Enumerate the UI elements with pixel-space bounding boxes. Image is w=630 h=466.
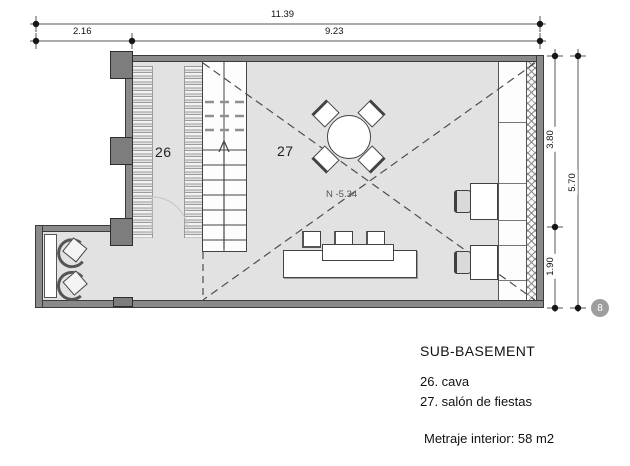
dim-right-lower: 1.90 — [545, 254, 556, 279]
pilaster — [110, 51, 133, 79]
armchair — [55, 267, 93, 303]
pilaster — [110, 218, 133, 246]
counter-division — [499, 280, 526, 281]
floor-plan-sheet: 26 27 N -5.34 11.39 2.16 9.23 3.80 1.90 … — [0, 0, 630, 466]
dim-top-right: 9.23 — [322, 26, 347, 37]
passage-floor — [124, 246, 133, 301]
annex-wall-left — [35, 225, 43, 308]
annex-wall-top — [35, 225, 117, 232]
counter-division — [499, 220, 526, 221]
floor-title: SUB-BASEMENT — [420, 343, 535, 359]
bar-counter-top — [322, 244, 394, 261]
room-27-label: 27 — [277, 143, 294, 159]
dim-right-total: 5.70 — [567, 170, 578, 195]
counter-division — [499, 183, 526, 184]
room-26-label: 26 — [155, 144, 172, 160]
interior-area-note: Metraje interior: 58 m2 — [424, 431, 554, 446]
pilaster — [110, 137, 133, 165]
desk-chair — [454, 251, 471, 274]
staircase — [202, 62, 247, 252]
level-annotation: N -5.34 — [326, 189, 357, 200]
bar-stool — [302, 231, 321, 248]
wine-rack-right — [184, 66, 203, 238]
pilaster — [113, 297, 133, 307]
dim-right-upper: 3.80 — [545, 127, 556, 152]
desk — [470, 245, 498, 280]
armchair — [54, 233, 93, 271]
built-in-counter — [498, 62, 526, 301]
sheet-marker-badge: 8 — [591, 299, 609, 317]
round-table — [327, 115, 371, 159]
wall-bottom — [35, 300, 544, 308]
counter-division — [499, 245, 526, 246]
dim-top-left: 2.16 — [70, 26, 95, 37]
legend-room-27: 27. salón de fiestas — [420, 394, 532, 409]
legend-room-26: 26. cava — [420, 374, 469, 389]
hatched-wall-lining — [526, 62, 536, 301]
wall-right — [536, 55, 544, 308]
wine-rack-left — [133, 66, 153, 238]
counter-division — [499, 122, 526, 123]
desk — [470, 183, 498, 220]
dim-top-total: 11.39 — [268, 9, 297, 20]
wall-top — [125, 55, 544, 62]
desk-chair — [454, 190, 471, 213]
